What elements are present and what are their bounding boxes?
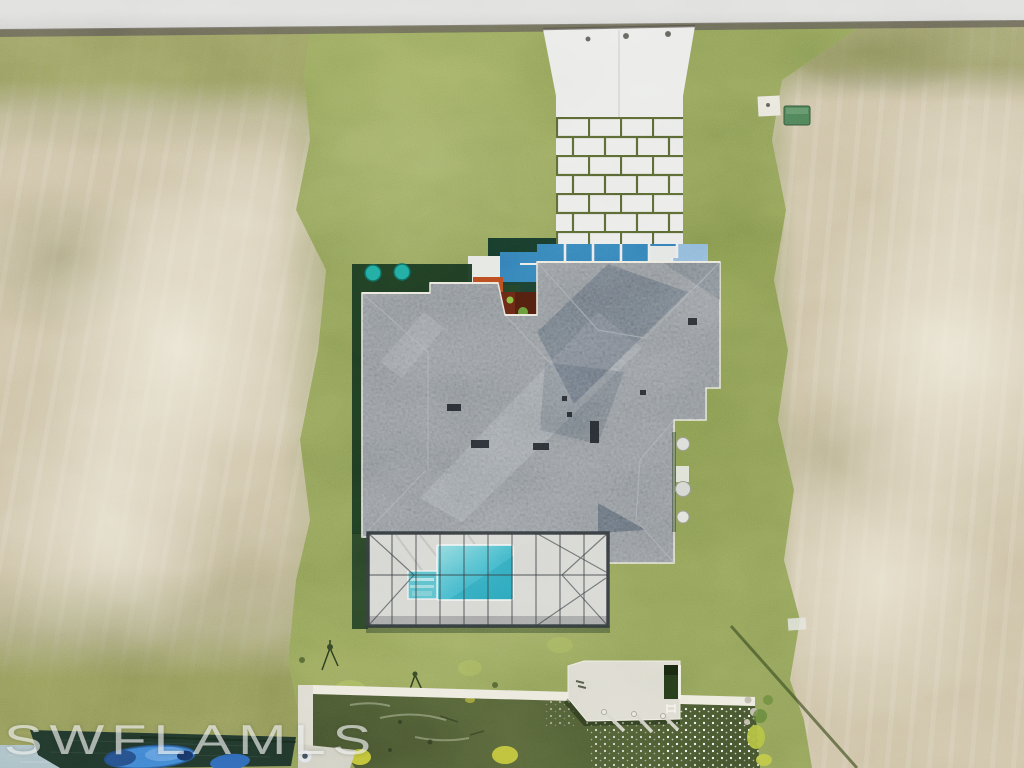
aerial-photo-home-pool-canal: SWFLAMLS — [0, 0, 1024, 768]
algae-patches — [349, 697, 772, 766]
right-vacant-lot — [760, 20, 1024, 768]
road-curb-line — [0, 0, 1024, 44]
bank-rocks — [744, 695, 773, 725]
covered-boat — [103, 743, 195, 768]
water-sparkle — [585, 706, 760, 768]
dock-platform — [30, 730, 296, 768]
landscaping-mulch-bed — [473, 277, 552, 350]
shingle-house-roof — [350, 250, 730, 570]
screened-pool-enclosure — [366, 533, 610, 633]
subject-lot-lawn — [0, 20, 1024, 768]
paver-driveway-section — [556, 117, 683, 248]
scene-structures — [0, 0, 1024, 768]
teal-shrub — [365, 265, 381, 281]
mls-watermark: SWFLAMLS — [4, 719, 378, 761]
roof-vents — [447, 318, 697, 450]
utility-box — [757, 95, 810, 125]
film-grain-overlay — [0, 0, 1024, 768]
dock-fender — [299, 750, 312, 763]
boat-lift-well — [664, 665, 678, 699]
screen-cage-frame — [368, 533, 608, 626]
dock-slab — [568, 661, 680, 721]
corner-concrete-pad — [298, 744, 356, 768]
neighbor-dock-with-covered-boat — [0, 730, 356, 768]
concrete-seawall — [313, 685, 755, 706]
swimming-pool — [437, 545, 513, 600]
roof-outline — [362, 262, 720, 563]
lift-beams — [606, 713, 678, 732]
small-tree — [322, 640, 338, 670]
backyard-vegetation — [299, 617, 806, 704]
terrain-mottle-overlay — [0, 0, 1024, 768]
concrete-boat-dock — [564, 661, 681, 732]
roof-ridge-lines — [362, 262, 720, 563]
vignette-overlay — [0, 0, 1024, 768]
canal-water — [298, 685, 773, 768]
plants — [481, 297, 552, 346]
teal-shrub — [394, 264, 410, 280]
entry-courtyard-panels — [440, 238, 708, 295]
ac-equipment — [672, 432, 691, 532]
driveway-debris — [586, 31, 672, 42]
pole-shadow — [731, 626, 857, 768]
jet-ski — [209, 752, 250, 768]
spa-steps — [408, 571, 437, 599]
street-road — [0, 0, 1024, 34]
hedge-shadow-band — [352, 264, 472, 629]
small-tree — [408, 672, 423, 696]
left-vacant-lot — [0, 20, 340, 768]
concrete-driveway — [543, 26, 695, 248]
